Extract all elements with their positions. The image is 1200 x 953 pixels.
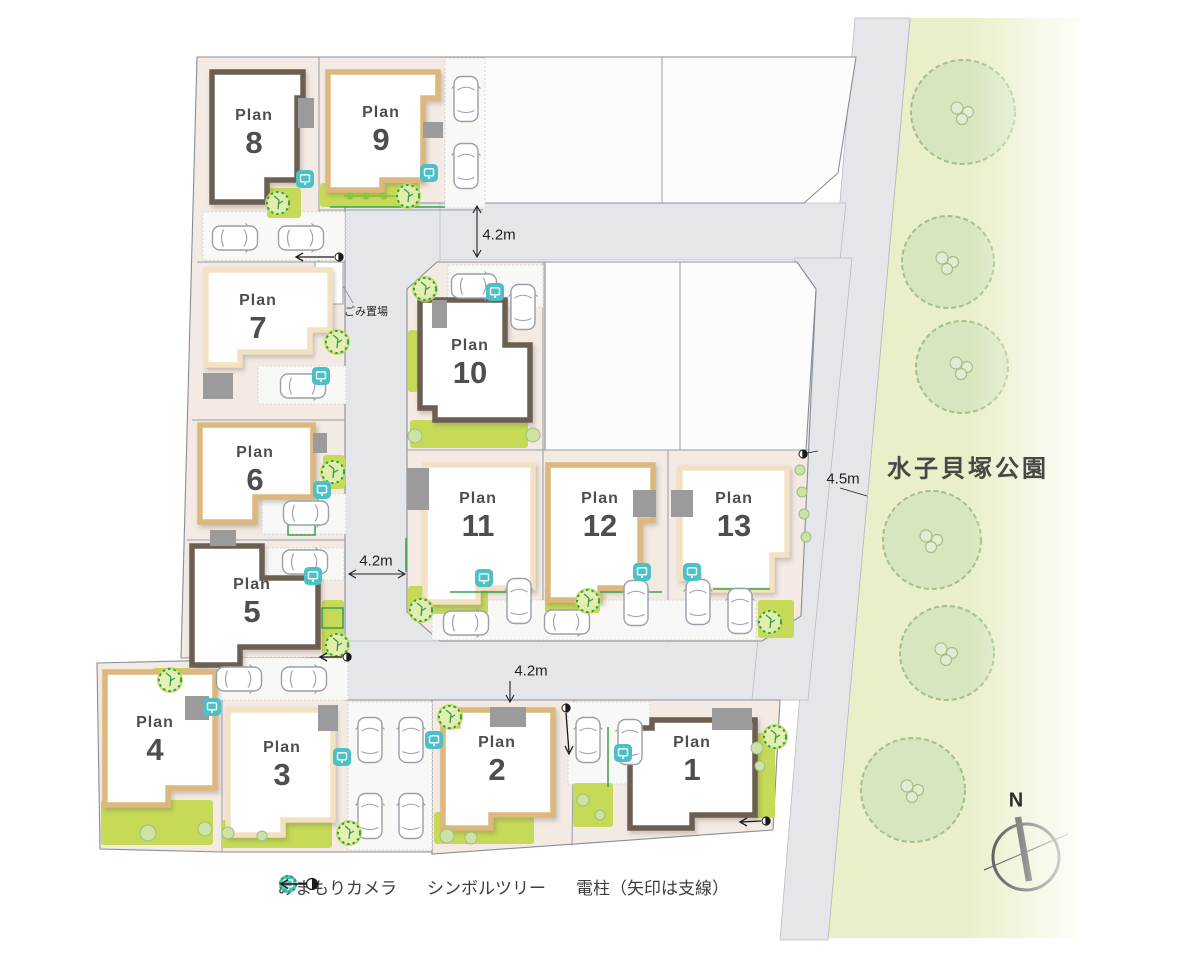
park-tree — [911, 60, 1015, 164]
park-name-label: 水子貝塚公園 — [887, 449, 1049, 484]
utility-pole-icon — [799, 450, 807, 458]
park-tree — [916, 321, 1008, 413]
car — [217, 665, 262, 694]
camera-icon — [683, 563, 701, 581]
car — [213, 224, 258, 253]
car — [505, 579, 534, 624]
garbage-area-label: ごみ置場 — [344, 303, 388, 319]
camera-icon — [296, 170, 314, 188]
camera-icon — [333, 748, 351, 766]
legend-symbol-tree-label: シンボルツリー — [427, 874, 546, 899]
plan-5-label: Plan 5 — [233, 577, 271, 627]
plan-11-label: Plan 11 — [459, 491, 497, 541]
park-tree — [883, 491, 981, 589]
dimension-left-road: 4.2m — [359, 553, 392, 570]
car — [684, 580, 713, 625]
camera-icon — [304, 567, 322, 585]
plan-2-label: Plan 2 — [478, 735, 516, 785]
plan-6-label: Plan 6 — [236, 445, 274, 495]
park-tree — [902, 216, 994, 308]
symbol-tree-icon — [265, 190, 291, 216]
plan-7-label: Plan 7 — [239, 293, 277, 343]
camera-icon — [203, 698, 221, 716]
camera-icon — [420, 164, 438, 182]
road-bottom — [345, 641, 800, 700]
camera-icon — [313, 481, 331, 499]
symbol-tree-icon — [437, 704, 463, 730]
utility-pole-icon — [343, 653, 351, 661]
car — [397, 794, 426, 839]
camera-icon — [614, 744, 632, 762]
plan-4-label: Plan 4 — [136, 715, 174, 765]
car — [452, 144, 481, 189]
camera-icon — [475, 569, 493, 587]
plan-9-label: Plan 9 — [362, 105, 400, 155]
camera-icon — [312, 367, 330, 385]
car — [509, 285, 538, 330]
plan-3-label: Plan 3 — [263, 740, 301, 790]
camera-icon — [425, 731, 443, 749]
plan-1-label: Plan 1 — [673, 735, 711, 785]
legend: みまもりカメラ シンボルツリー 電柱（矢印は支線） — [278, 874, 729, 899]
plan-13-label: Plan 13 — [715, 491, 753, 541]
utility-pole-icon — [335, 253, 343, 261]
car — [444, 609, 489, 638]
car — [622, 581, 651, 626]
symbol-tree-icon — [408, 597, 434, 623]
site-plan-canvas: Plan 1 Plan 2 Plan 3 Plan 4 Plan 5 Plan … — [0, 0, 1200, 953]
legend-item-symbol-tree: シンボルツリー — [427, 874, 546, 899]
car — [282, 665, 327, 694]
symbol-tree-icon — [762, 724, 788, 750]
car — [356, 718, 385, 763]
utility-pole-icon — [762, 817, 770, 825]
symbol-tree-icon — [757, 609, 783, 635]
dimension-park-road: 4.5m — [826, 471, 859, 488]
symbol-tree-icon — [336, 820, 362, 846]
utility-pole-icon — [562, 704, 570, 712]
park-tree — [861, 738, 965, 842]
compass-north-label: N — [1009, 790, 1023, 813]
car — [452, 77, 481, 122]
dimension-bottom-road: 4.2m — [514, 663, 547, 680]
car — [397, 718, 426, 763]
park-tree — [900, 606, 994, 700]
symbol-tree-icon — [412, 276, 438, 302]
symbol-tree-icon — [575, 588, 601, 614]
car — [574, 718, 603, 763]
car — [284, 499, 329, 528]
car — [726, 589, 755, 634]
dimension-top-road: 4.2m — [482, 227, 515, 244]
symbol-tree-icon — [324, 329, 350, 355]
plan-8-label: Plan 8 — [235, 108, 273, 158]
camera-icon — [633, 563, 651, 581]
symbol-tree-icon — [157, 667, 183, 693]
camera-icon — [486, 283, 504, 301]
plan-10-label: Plan 10 — [451, 338, 489, 388]
legend-utility-pole-label: 電柱（矢印は支線） — [576, 874, 729, 899]
car — [279, 224, 324, 253]
utility-pole-icon — [278, 874, 320, 894]
legend-item-utility-pole: 電柱（矢印は支線） — [576, 874, 729, 899]
symbol-tree-icon — [395, 183, 421, 209]
plan-12-label: Plan 12 — [581, 491, 619, 541]
lot-region-top-empty — [483, 57, 856, 203]
